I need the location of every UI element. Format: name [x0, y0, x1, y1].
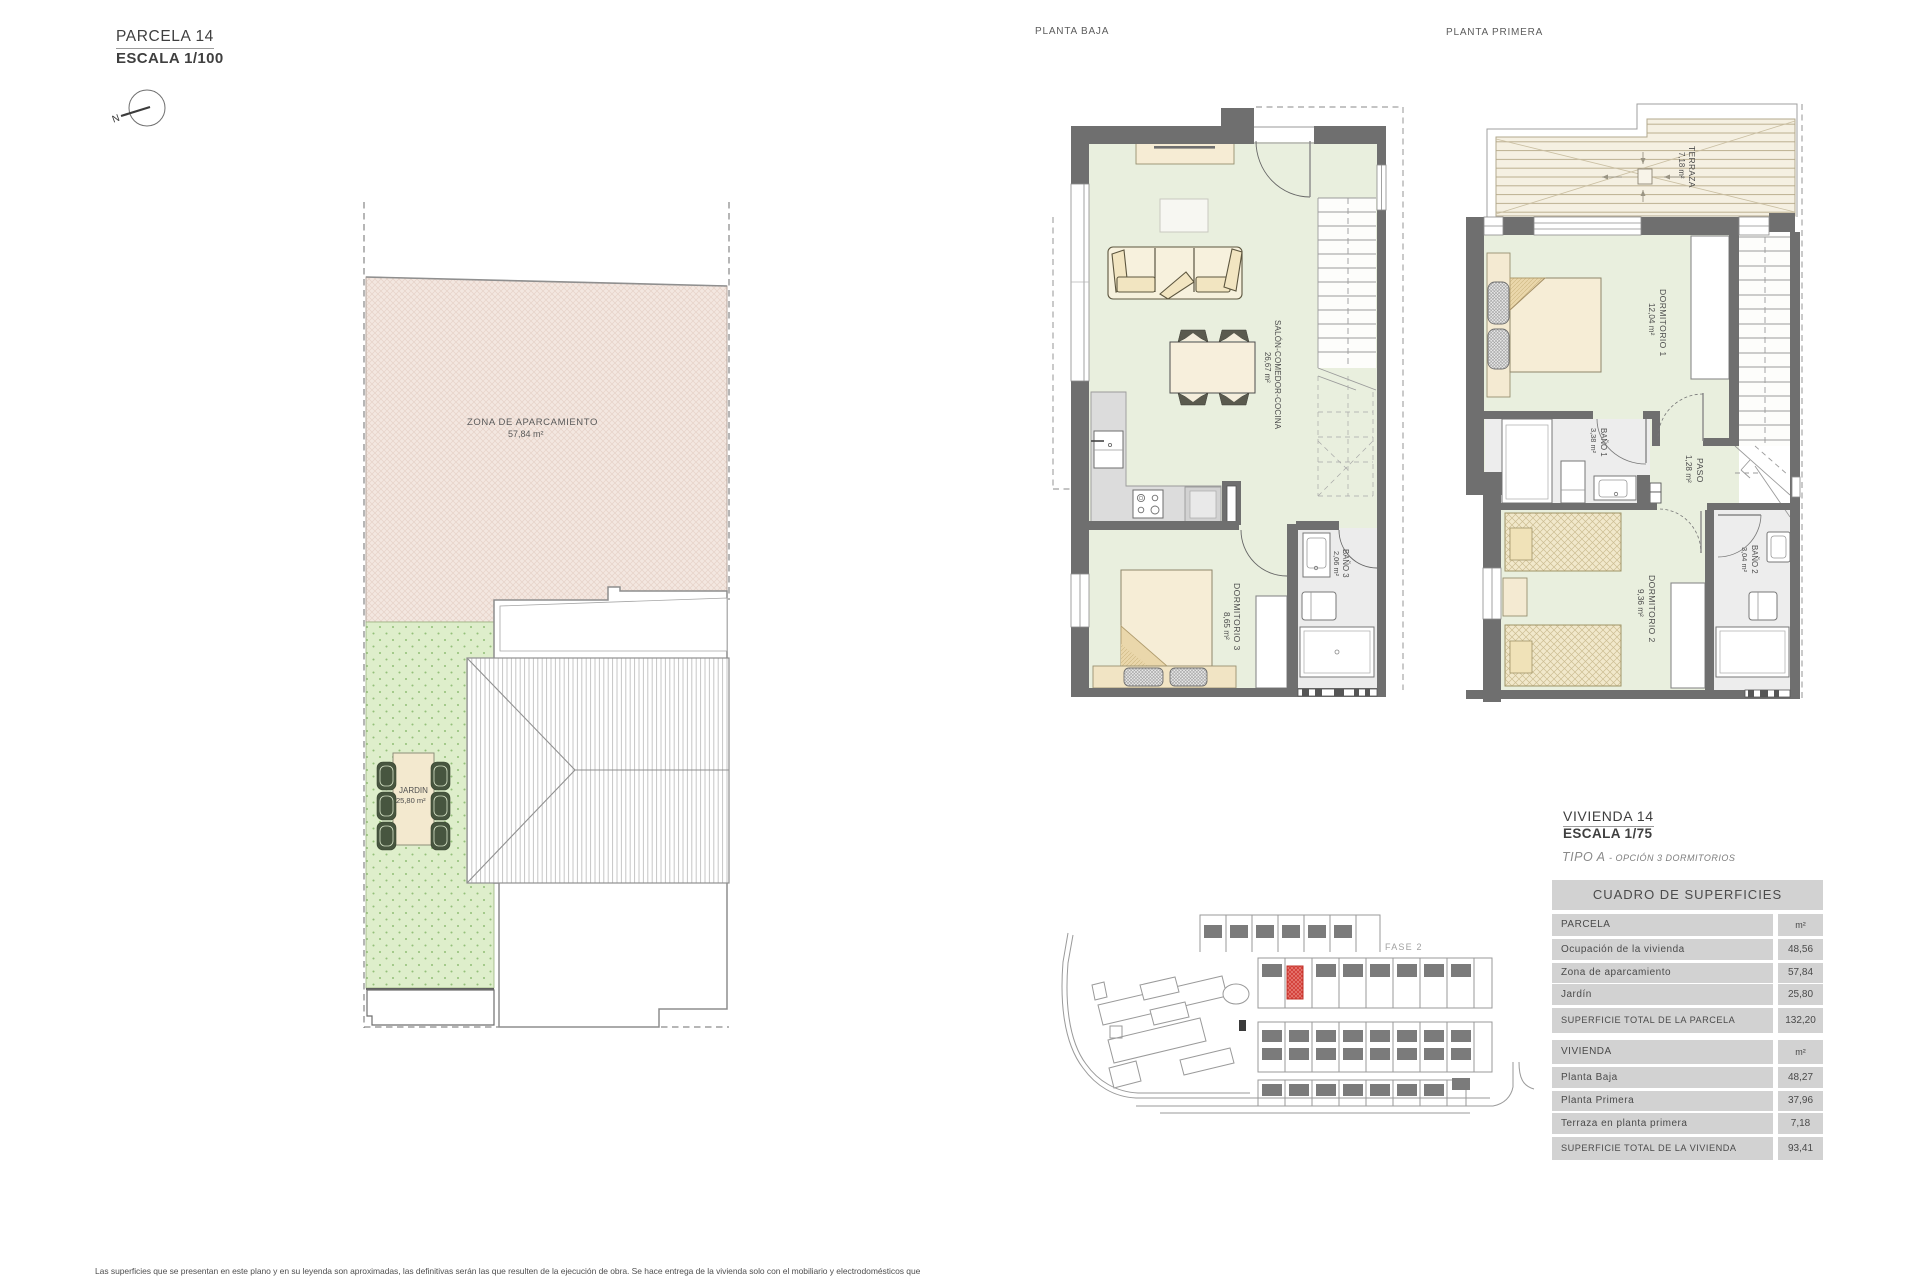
svg-text:BAÑO 2: BAÑO 2 [1750, 545, 1759, 574]
svg-text:SALÓN-COMEDOR-COCINA: SALÓN-COMEDOR-COCINA [1273, 320, 1282, 430]
svg-text:26,67 m²: 26,67 m² [1263, 352, 1272, 383]
svg-text:3,04 m²: 3,04 m² [1740, 547, 1749, 573]
svg-text:3,38 m²: 3,38 m² [1589, 428, 1598, 454]
svg-text:12,04 m²: 12,04 m² [1647, 303, 1656, 336]
svg-text:2,06 m²: 2,06 m² [1332, 551, 1341, 577]
svg-text:9,36 m²: 9,36 m² [1636, 589, 1645, 617]
svg-text:PASO: PASO [1695, 458, 1705, 483]
svg-text:7,18 m²: 7,18 m² [1677, 152, 1686, 179]
svg-text:57,84 m²: 57,84 m² [508, 429, 544, 439]
svg-text:BAÑO 3: BAÑO 3 [1341, 549, 1350, 578]
svg-text:FASE 2: FASE 2 [1385, 942, 1423, 952]
svg-text:25,80 m²: 25,80 m² [396, 796, 426, 805]
svg-text:1,28 m²: 1,28 m² [1684, 455, 1693, 483]
svg-text:N: N [111, 113, 122, 126]
svg-text:DORMITORIO 3: DORMITORIO 3 [1232, 583, 1242, 651]
svg-text:TERRAZA: TERRAZA [1687, 146, 1697, 188]
svg-text:DORMITORIO 2: DORMITORIO 2 [1647, 575, 1657, 643]
svg-text:JARDIN: JARDIN [399, 786, 428, 795]
svg-text:ZONA DE APARCAMIENTO: ZONA DE APARCAMIENTO [467, 417, 598, 428]
svg-text:8,65 m²: 8,65 m² [1222, 612, 1231, 640]
svg-text:DORMITORIO 1: DORMITORIO 1 [1658, 289, 1668, 357]
